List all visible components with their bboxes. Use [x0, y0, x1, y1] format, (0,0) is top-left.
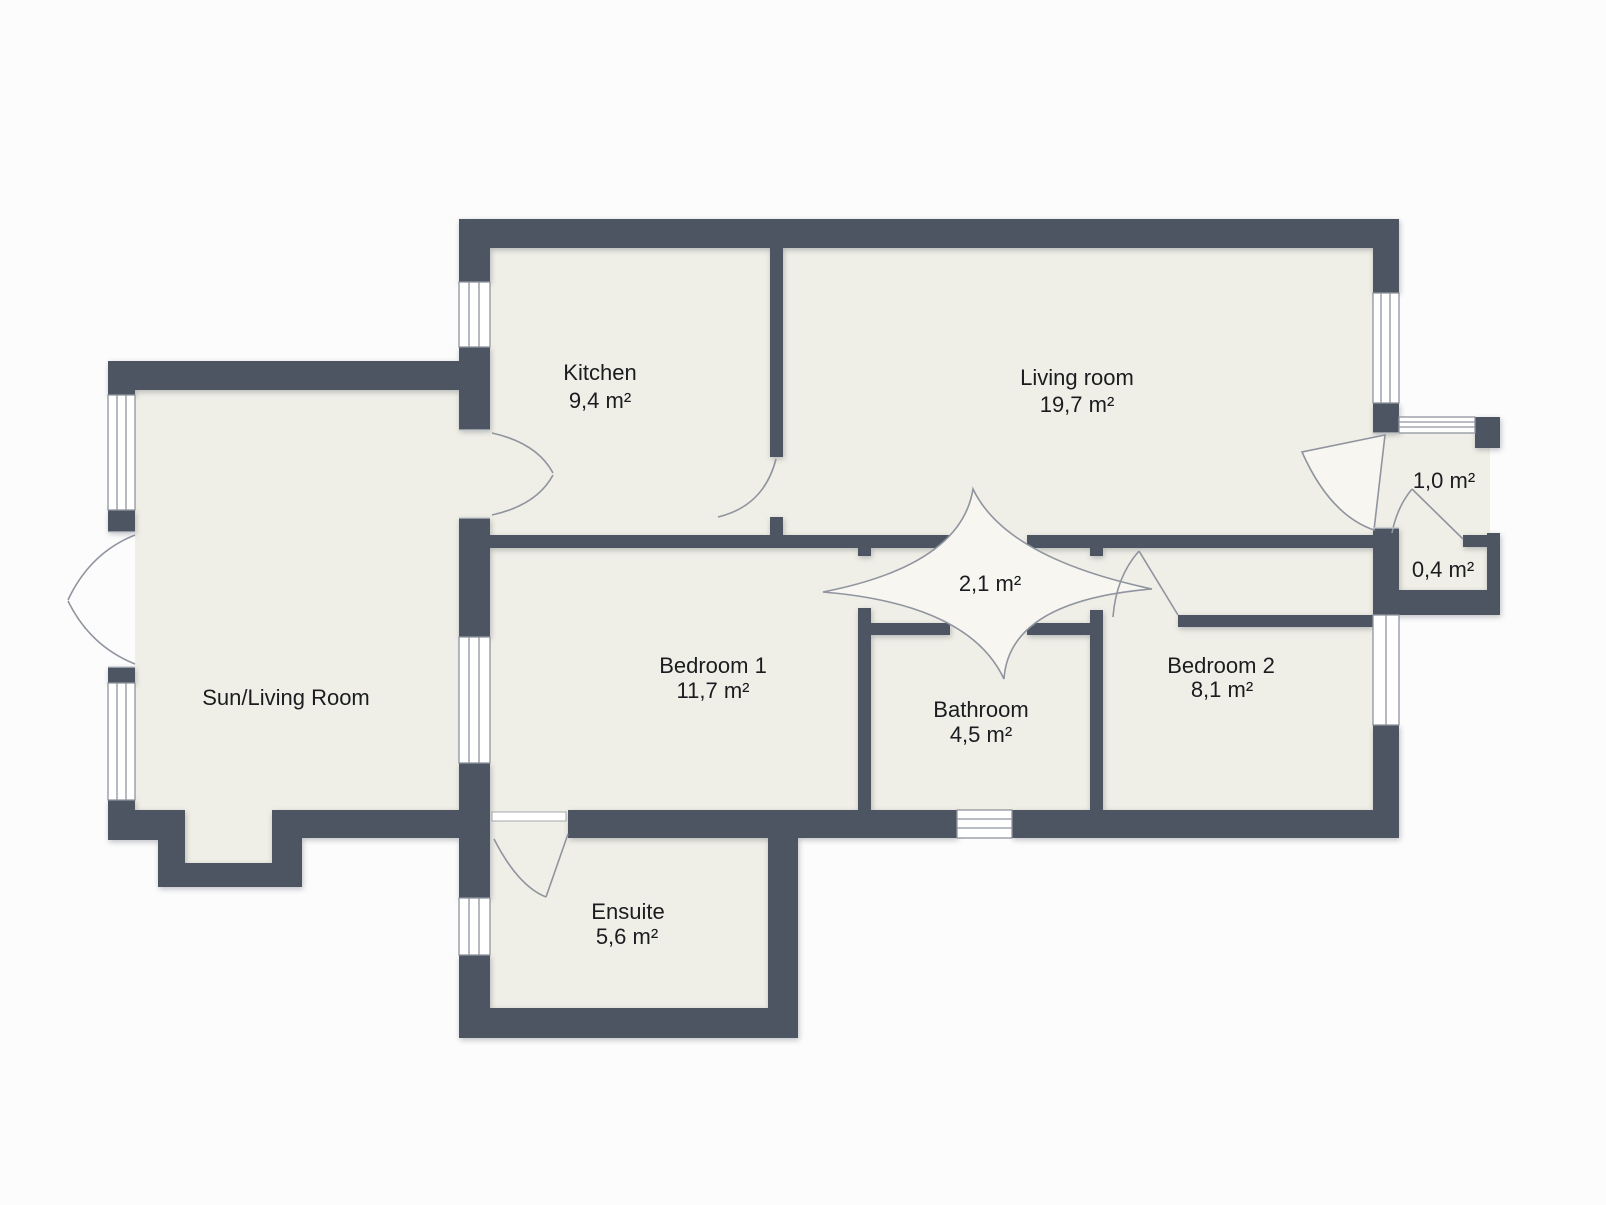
- bedroom-2-label: Bedroom 2: [1167, 653, 1275, 678]
- entry-window: [1399, 417, 1475, 433]
- sun-living-room-floor: [135, 390, 459, 863]
- sun-living-room-label: Sun/Living Room: [202, 685, 370, 710]
- ensuite-window: [459, 898, 490, 955]
- entry-area: 1,0 m²: [1413, 468, 1475, 493]
- kitchen-window: [459, 282, 490, 347]
- sunroom-window-top: [108, 395, 135, 510]
- ensuite-label: Ensuite: [591, 899, 664, 924]
- floor-plan: Kitchen 9,4 m² Living room 19,7 m² Sun/L…: [0, 0, 1606, 1205]
- living-room-area: 19,7 m²: [1040, 392, 1115, 417]
- bedroom-1-area: 11,7 m²: [677, 678, 750, 703]
- living-room-window: [1373, 293, 1399, 403]
- sunroom-french-doors: [68, 535, 135, 664]
- sunroom-window-bottom: [108, 683, 135, 800]
- kitchen-label: Kitchen: [563, 360, 636, 385]
- bathroom-area: 4,5 m²: [950, 722, 1012, 747]
- ensuite-door-threshold: [492, 812, 566, 821]
- closet-area: 0,4 m²: [1412, 557, 1474, 582]
- bedroom-2-window: [1373, 615, 1399, 725]
- bedroom-2-area: 8,1 m²: [1191, 677, 1253, 702]
- bedroom-1-floor: [490, 548, 858, 810]
- living-room-label: Living room: [1020, 365, 1134, 390]
- kitchen-area: 9,4 m²: [569, 388, 631, 413]
- bathroom-window: [957, 810, 1012, 838]
- floor-plan-page: Kitchen 9,4 m² Living room 19,7 m² Sun/L…: [0, 0, 1606, 1205]
- bedroom-1-label: Bedroom 1: [659, 653, 767, 678]
- bathroom-label: Bathroom: [933, 697, 1028, 722]
- bedroom-1-window: [459, 637, 490, 763]
- hallway-area: 2,1 m²: [959, 571, 1021, 596]
- ensuite-area: 5,6 m²: [596, 924, 658, 949]
